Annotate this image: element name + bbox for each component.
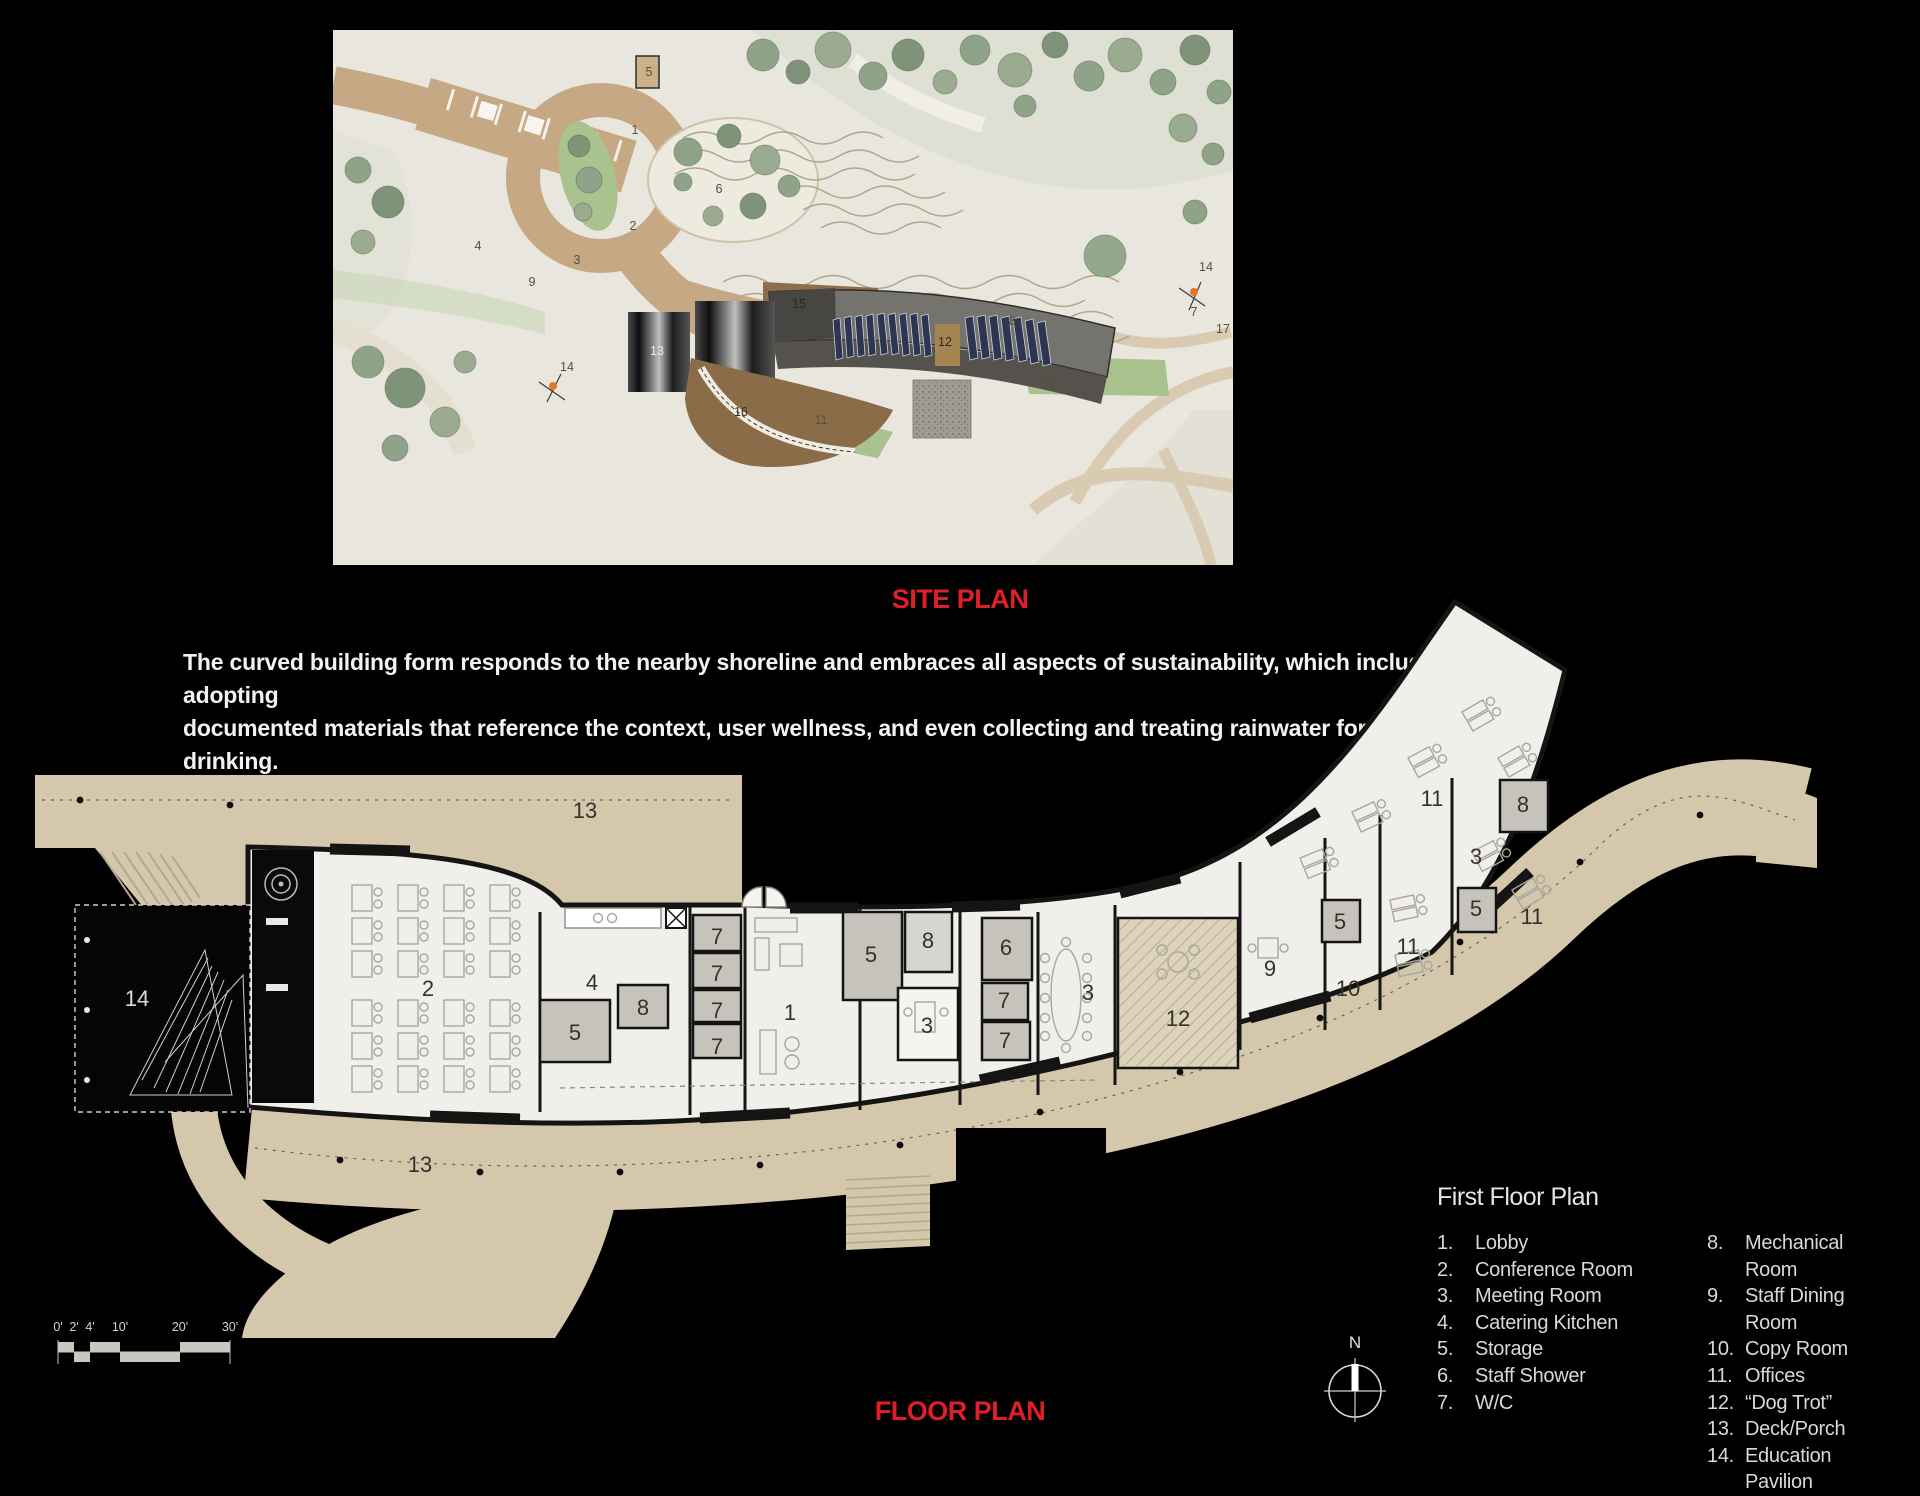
site-plan-drawing: 123456789101112131414151617 <box>333 30 1233 565</box>
legend-item-label: Offices <box>1745 1363 1805 1390</box>
room-number: 5 <box>646 65 653 79</box>
room-number: 2 <box>630 219 637 233</box>
scale-tick-label: 2' <box>69 1320 78 1334</box>
room-number: 2 <box>422 976 434 1001</box>
legend-item: 12.“Dog Trot” <box>1707 1390 1897 1417</box>
legend-item-number: 14. <box>1707 1443 1745 1496</box>
legend-item-number: 2. <box>1437 1257 1475 1284</box>
room-number: 17 <box>1216 322 1230 336</box>
north-label: N <box>1349 1333 1361 1352</box>
room-number: 7 <box>711 998 723 1023</box>
room-number: 8 <box>1517 792 1529 817</box>
room-number: 13 <box>573 798 597 823</box>
legend-item-label: Staff Dining Room <box>1745 1283 1897 1336</box>
legend-item-label: Staff Shower <box>1475 1363 1586 1390</box>
room-number: 7 <box>711 961 723 986</box>
legend-item-number: 4. <box>1437 1310 1475 1337</box>
north-needle <box>1352 1364 1359 1391</box>
legend-item-label: Copy Room <box>1745 1336 1848 1363</box>
room-number: 12 <box>938 335 952 349</box>
room-number: 5 <box>865 942 877 967</box>
legend-item-label: Conference Room <box>1475 1257 1633 1284</box>
legend-item: 3.Meeting Room <box>1437 1283 1707 1310</box>
room-number: 10 <box>1040 373 1054 387</box>
room-number: 11 <box>1397 934 1420 959</box>
legend-item-label: “Dog Trot” <box>1745 1390 1832 1417</box>
room-number: 5 <box>1334 909 1346 934</box>
room-number: 8 <box>1009 314 1016 328</box>
legend-item-label: Storage <box>1475 1336 1543 1363</box>
legend-item: 14.Education Pavilion <box>1707 1443 1897 1496</box>
room-number: 11 <box>1421 786 1444 811</box>
education-pavilion <box>75 905 250 1112</box>
legend-item: 1.Lobby <box>1437 1230 1707 1257</box>
legend-item-number: 6. <box>1437 1363 1475 1390</box>
legend-item-label: Lobby <box>1475 1230 1528 1257</box>
room-number: 14 <box>125 986 149 1011</box>
room-number: 13 <box>408 1152 432 1177</box>
dog-trot <box>1118 918 1238 1068</box>
room-number: 4 <box>475 239 482 253</box>
legend: First Floor Plan 1.Lobby2.Conference Roo… <box>1437 1183 1897 1496</box>
scale-bar: 0'2'4'10'20'30' <box>50 1320 250 1376</box>
legend-item-number: 5. <box>1437 1336 1475 1363</box>
legend-item-number: 8. <box>1707 1230 1745 1283</box>
scale-tick-label: 10' <box>112 1320 128 1334</box>
scale-tick-label: 4' <box>85 1320 94 1334</box>
room-number: 8 <box>637 995 649 1020</box>
legend-item: 4.Catering Kitchen <box>1437 1310 1707 1337</box>
legend-item: 13.Deck/Porch <box>1707 1416 1897 1443</box>
room-number: 3 <box>921 1013 933 1038</box>
room-number: 3 <box>1082 980 1094 1005</box>
north-compass: N <box>1322 1330 1388 1424</box>
legend-item-number: 10. <box>1707 1336 1745 1363</box>
scale-tick-label: 30' <box>222 1320 238 1334</box>
legend-item-number: 7. <box>1437 1390 1475 1417</box>
legend-column-2: 8.Mechanical Room9.Staff Dining Room10.C… <box>1707 1230 1897 1496</box>
room-number: 7 <box>1191 305 1198 319</box>
room-number: 15 <box>792 297 806 311</box>
room-number: 9 <box>1264 956 1276 981</box>
scale-tick-label: 20' <box>172 1320 188 1334</box>
room-number: 16 <box>734 405 748 419</box>
room-number: 7 <box>711 1034 723 1059</box>
legend-item: 11.Offices <box>1707 1363 1897 1390</box>
room-number: 7 <box>999 1028 1011 1053</box>
legend-item-label: Deck/Porch <box>1745 1416 1845 1443</box>
room-number: 3 <box>574 253 581 267</box>
room-number: 5 <box>1470 896 1482 921</box>
legend-item: 5.Storage <box>1437 1336 1707 1363</box>
legend-item-label: W/C <box>1475 1390 1513 1417</box>
room-number: 11 <box>815 413 828 427</box>
room-number: 8 <box>922 928 934 953</box>
room-number: 1 <box>784 1000 796 1025</box>
legend-item-number: 3. <box>1437 1283 1475 1310</box>
room-number: 7 <box>998 988 1010 1013</box>
legend-item-number: 12. <box>1707 1390 1745 1417</box>
room-number: 3 <box>1470 844 1482 869</box>
legend-item-label: Catering Kitchen <box>1475 1310 1618 1337</box>
scale-tick-label: 0' <box>53 1320 62 1334</box>
presentation-board: { "colors": { "page_bg": "#000000", "acc… <box>0 0 1920 1484</box>
kitchen-counter <box>565 908 686 928</box>
room-number: 14 <box>560 360 574 374</box>
legend-item: 2.Conference Room <box>1437 1257 1707 1284</box>
room-number: 14 <box>1199 260 1213 274</box>
legend-heading: First Floor Plan <box>1437 1183 1897 1212</box>
legend-item: 6.Staff Shower <box>1437 1363 1707 1390</box>
entry-connector <box>252 850 314 1103</box>
room-number: 11 <box>1521 904 1544 929</box>
room-number: 6 <box>1000 935 1012 960</box>
legend-item-label: Mechanical Room <box>1745 1230 1897 1283</box>
legend-item: 9.Staff Dining Room <box>1707 1283 1897 1336</box>
legend-item: 7.W/C <box>1437 1390 1707 1417</box>
room-number: 7 <box>711 924 723 949</box>
legend-item-number: 9. <box>1707 1283 1745 1336</box>
room-number: 12 <box>1166 1006 1190 1031</box>
room-number: 5 <box>569 1020 581 1045</box>
legend-item: 8.Mechanical Room <box>1707 1230 1897 1283</box>
room-number: 13 <box>650 344 664 358</box>
legend-item-number: 1. <box>1437 1230 1475 1257</box>
legend-item-number: 11. <box>1707 1363 1745 1390</box>
legend-item-number: 13. <box>1707 1416 1745 1443</box>
legend-item-label: Meeting Room <box>1475 1283 1601 1310</box>
legend-item-label: Education Pavilion <box>1745 1443 1897 1496</box>
room-number: 1 <box>632 123 639 137</box>
room-number: 9 <box>529 275 536 289</box>
legend-item: 10.Copy Room <box>1707 1336 1897 1363</box>
room-number: 4 <box>586 970 598 995</box>
legend-column-1: 1.Lobby2.Conference Room3.Meeting Room4.… <box>1437 1230 1707 1496</box>
room-number: 10 <box>1336 976 1360 1001</box>
room-number: 6 <box>716 182 723 196</box>
